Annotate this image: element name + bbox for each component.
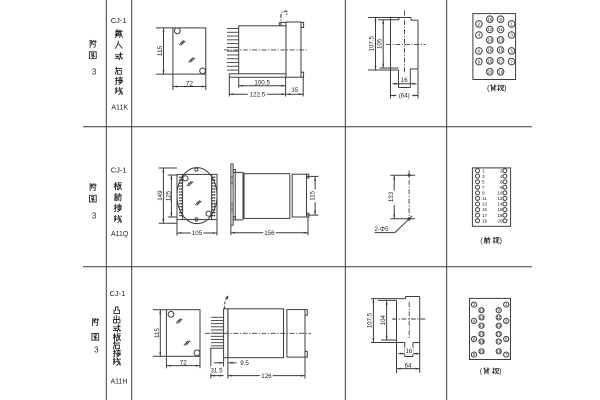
svg-text:10: 10 <box>487 17 493 22</box>
svg-text:107.5: 107.5 <box>369 35 376 51</box>
svg-text:18: 18 <box>497 213 503 218</box>
svg-text:4: 4 <box>478 33 481 38</box>
svg-text:14: 14 <box>487 38 493 43</box>
svg-text:9: 9 <box>499 17 502 22</box>
svg-text:A11H: A11H <box>111 379 128 386</box>
svg-text:12: 12 <box>479 315 484 320</box>
svg-text:115: 115 <box>309 190 316 200</box>
svg-text:100.5: 100.5 <box>254 80 270 87</box>
svg-text:6: 6 <box>500 179 503 184</box>
svg-text:A11Q: A11Q <box>111 231 129 238</box>
svg-text:72: 72 <box>180 360 187 367</box>
svg-text:11: 11 <box>498 27 503 32</box>
svg-text:3: 3 <box>94 345 99 354</box>
svg-text:9.5: 9.5 <box>240 360 249 367</box>
svg-text:17: 17 <box>496 339 501 344</box>
svg-text:2-Φ5: 2-Φ5 <box>375 226 389 233</box>
svg-text:5: 5 <box>510 49 513 54</box>
svg-text:15: 15 <box>498 48 504 53</box>
svg-text:12: 12 <box>497 196 503 201</box>
svg-text:104: 104 <box>380 314 387 325</box>
svg-text:3: 3 <box>92 212 97 221</box>
svg-text:3: 3 <box>482 174 485 179</box>
svg-text:133: 133 <box>388 191 395 202</box>
svg-text:125: 125 <box>165 190 172 201</box>
svg-text:9: 9 <box>482 191 485 196</box>
svg-text:7: 7 <box>482 185 485 190</box>
svg-text:1: 1 <box>510 22 513 27</box>
svg-text:3: 3 <box>510 33 513 38</box>
svg-text:72: 72 <box>186 81 194 88</box>
svg-text:12: 12 <box>487 27 493 32</box>
svg-text:16: 16 <box>406 349 413 355</box>
svg-text:19: 19 <box>498 69 504 74</box>
svg-text:18: 18 <box>487 58 493 63</box>
svg-text:107.5: 107.5 <box>367 312 374 328</box>
svg-text:CJ-1: CJ-1 <box>109 289 125 298</box>
svg-text:2: 2 <box>500 168 503 173</box>
svg-text:115: 115 <box>154 328 161 338</box>
svg-text:5: 5 <box>482 179 485 184</box>
svg-text:20: 20 <box>479 349 484 354</box>
svg-text:19: 19 <box>496 349 501 354</box>
svg-text:15: 15 <box>496 332 501 337</box>
svg-text:20: 20 <box>487 69 493 74</box>
svg-text:A11K: A11K <box>111 105 128 112</box>
svg-text:1: 1 <box>482 168 485 173</box>
svg-text:105: 105 <box>377 38 384 49</box>
svg-text:11: 11 <box>497 315 502 320</box>
svg-text:16: 16 <box>487 48 493 53</box>
svg-text:149: 149 <box>157 190 164 201</box>
svg-text:2: 2 <box>478 22 481 27</box>
svg-text:31.5: 31.5 <box>210 368 223 375</box>
svg-text:15: 15 <box>482 207 488 212</box>
svg-text:105: 105 <box>192 230 203 237</box>
svg-text:CJ-1: CJ-1 <box>111 16 127 25</box>
svg-text:8: 8 <box>500 185 503 190</box>
svg-text:CJ-1: CJ-1 <box>111 165 127 174</box>
svg-text:13: 13 <box>498 38 504 43</box>
svg-text:4: 4 <box>500 174 503 179</box>
svg-text:35: 35 <box>291 87 298 94</box>
svg-text:20: 20 <box>497 218 503 223</box>
svg-text:11: 11 <box>482 196 487 201</box>
svg-text:8: 8 <box>478 59 481 64</box>
svg-text:122.5: 122.5 <box>250 92 266 99</box>
svg-text:16: 16 <box>479 332 484 337</box>
svg-text:17: 17 <box>482 213 488 218</box>
svg-text:13: 13 <box>482 202 488 207</box>
svg-text:16: 16 <box>497 207 503 212</box>
svg-text:156: 156 <box>264 230 275 237</box>
svg-text:18: 18 <box>479 339 484 344</box>
svg-text:16: 16 <box>401 77 408 84</box>
svg-text:7: 7 <box>510 59 513 64</box>
svg-text:10: 10 <box>497 191 503 196</box>
svg-text:115: 115 <box>157 45 164 56</box>
svg-text:6: 6 <box>478 49 481 54</box>
svg-text:14: 14 <box>497 202 503 207</box>
svg-text:17: 17 <box>498 58 504 63</box>
svg-text:(64): (64) <box>399 93 410 100</box>
svg-text:13: 13 <box>496 323 501 328</box>
svg-text:126: 126 <box>261 373 272 380</box>
svg-text:19: 19 <box>482 218 488 223</box>
svg-text:14: 14 <box>479 323 484 328</box>
svg-text:3: 3 <box>92 67 97 76</box>
svg-text:64: 64 <box>405 363 412 370</box>
svg-text:10: 10 <box>479 308 484 313</box>
